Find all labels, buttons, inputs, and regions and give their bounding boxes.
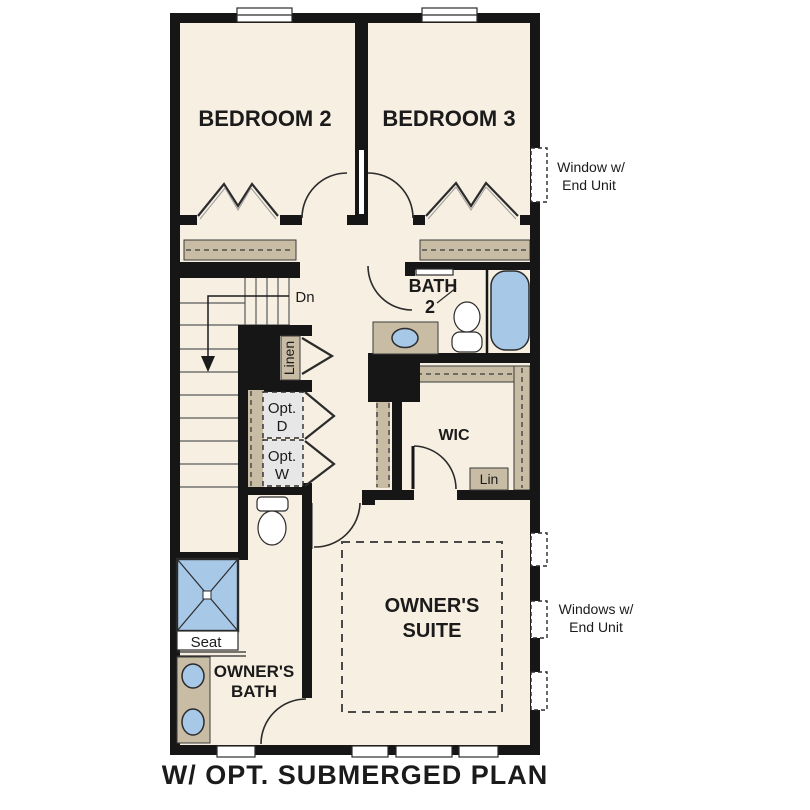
opt-washer-label-line2: W	[275, 466, 290, 483]
opt-washer-label-line1: Opt.	[268, 448, 296, 465]
owners-suite-label-line2: SUITE	[403, 620, 462, 642]
owners-suite-label-line1: OWNER'S	[385, 595, 480, 617]
floor-plan-drawing: BEDROOM 2 BEDROOM 3 BATH 2 WIC OWNER'S S…	[0, 0, 810, 810]
water-closet-toilet	[257, 497, 288, 545]
bathtub	[491, 271, 529, 350]
lin-label: Lin	[480, 471, 499, 487]
bedroom2-label: BEDROOM 2	[198, 106, 331, 131]
windows-end-unit-note-line2: End Unit	[569, 619, 623, 635]
owners-bath-label-line1: OWNER'S	[214, 662, 295, 681]
bath2-label-line2: 2	[425, 297, 435, 317]
side-window-suite-2	[531, 601, 547, 638]
top-window-bedroom3	[422, 8, 477, 22]
plan-title: W/ OPT. SUBMERGED PLAN	[162, 760, 549, 790]
side-window-bedroom3	[531, 148, 547, 202]
bath2-label-line1: BATH	[409, 276, 458, 296]
top-window-bedroom2	[237, 8, 292, 22]
seat-label: Seat	[191, 634, 223, 651]
floor-plan-page: BEDROOM 2 BEDROOM 3 BATH 2 WIC OWNER'S S…	[0, 0, 810, 810]
stairs-down-label: Dn	[295, 289, 314, 306]
bedroom3-label: BEDROOM 3	[382, 106, 515, 131]
side-window-suite-1	[531, 533, 547, 566]
shower	[177, 559, 238, 631]
window-end-unit-note-line1: Window w/	[557, 159, 625, 175]
windows-end-unit-note-line1: Windows w/	[559, 601, 634, 617]
owners-bath-label-line2: BATH	[231, 682, 277, 701]
side-window-suite-3	[531, 672, 547, 710]
linen-label: Linen	[281, 341, 297, 375]
opt-dryer-label-line1: Opt.	[268, 400, 296, 417]
owners-bath-sink-2	[182, 709, 204, 735]
opt-dryer-label-line2: D	[277, 418, 288, 435]
owners-bath-sink-1	[182, 664, 204, 688]
window-end-unit-note-line2: End Unit	[562, 177, 616, 193]
wic-label: WIC	[438, 427, 470, 444]
bath2-sink	[392, 329, 418, 348]
